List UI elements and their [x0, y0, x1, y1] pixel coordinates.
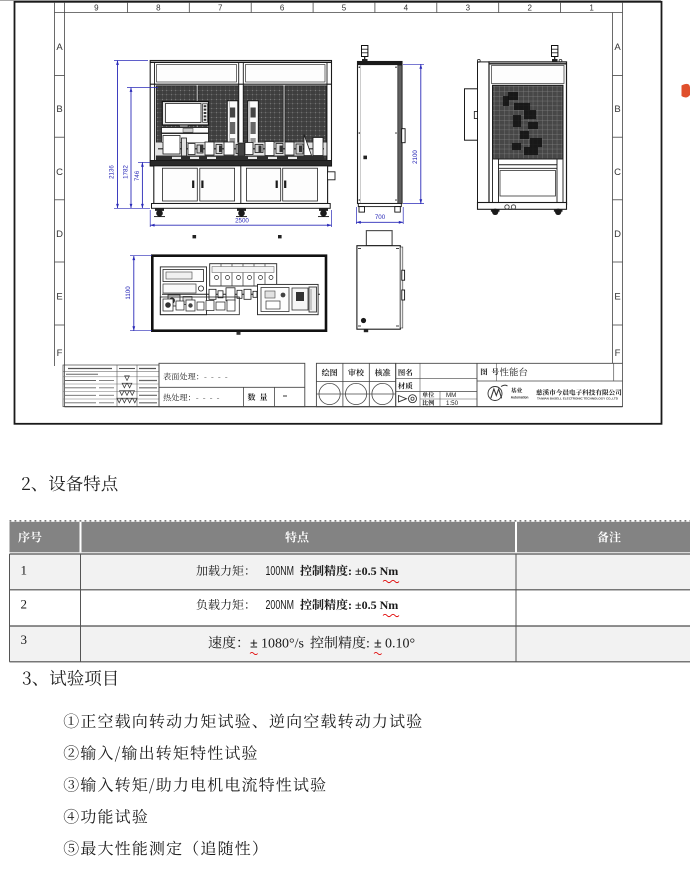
svg-text:1100: 1100: [125, 286, 132, 300]
svg-text:746: 746: [134, 170, 141, 181]
svg-text:7: 7: [218, 3, 223, 12]
svg-text:6: 6: [280, 3, 285, 12]
svg-text:4: 4: [404, 3, 409, 12]
svg-text:F: F: [615, 348, 621, 359]
svg-text:3: 3: [21, 632, 28, 647]
svg-text:100NM: 100NM: [266, 564, 295, 578]
svg-text:A: A: [614, 42, 621, 53]
svg-text:5: 5: [342, 3, 347, 12]
svg-text:: ±0.5 Nm: : ±0.5 Nm: [348, 598, 398, 612]
svg-text:MM: MM: [446, 392, 456, 399]
svg-text:1080°/s: 1080°/s: [261, 637, 304, 652]
svg-text:B: B: [614, 104, 620, 115]
svg-text:D: D: [56, 229, 63, 240]
svg-text::: :: [366, 637, 370, 652]
svg-text:0.10°: 0.10°: [385, 637, 415, 652]
svg-text:1:50: 1:50: [446, 400, 459, 407]
svg-text:D: D: [614, 229, 621, 240]
svg-text:2136: 2136: [109, 165, 116, 179]
svg-text:A: A: [56, 42, 63, 53]
svg-text:1: 1: [21, 563, 28, 578]
svg-text:8: 8: [156, 3, 161, 12]
svg-text:C: C: [56, 167, 63, 178]
svg-text:F: F: [57, 348, 63, 359]
svg-text:Automation: Automation: [511, 395, 529, 399]
svg-text:1: 1: [589, 3, 594, 12]
svg-text:2: 2: [21, 597, 28, 612]
svg-text:3: 3: [466, 3, 471, 12]
svg-text:2100: 2100: [412, 150, 419, 164]
svg-text:200NM: 200NM: [266, 598, 295, 612]
svg-text:TAIWAN BASELL ELECTRONIC TECHN: TAIWAN BASELL ELECTRONIC TECHNOLOGY CO.,…: [537, 396, 619, 400]
svg-text:B: B: [56, 104, 62, 115]
svg-text:: ±0.5 Nm: : ±0.5 Nm: [348, 564, 398, 578]
svg-text:±: ±: [250, 637, 258, 652]
svg-text:9: 9: [94, 3, 99, 12]
svg-text:700: 700: [375, 214, 386, 221]
svg-text:E: E: [614, 292, 620, 303]
svg-text:1782: 1782: [123, 165, 130, 179]
svg-text:C: C: [614, 167, 621, 178]
svg-text:±: ±: [374, 637, 382, 652]
svg-text:2: 2: [527, 3, 532, 12]
svg-text:E: E: [56, 292, 62, 303]
svg-text:2500: 2500: [235, 218, 249, 225]
